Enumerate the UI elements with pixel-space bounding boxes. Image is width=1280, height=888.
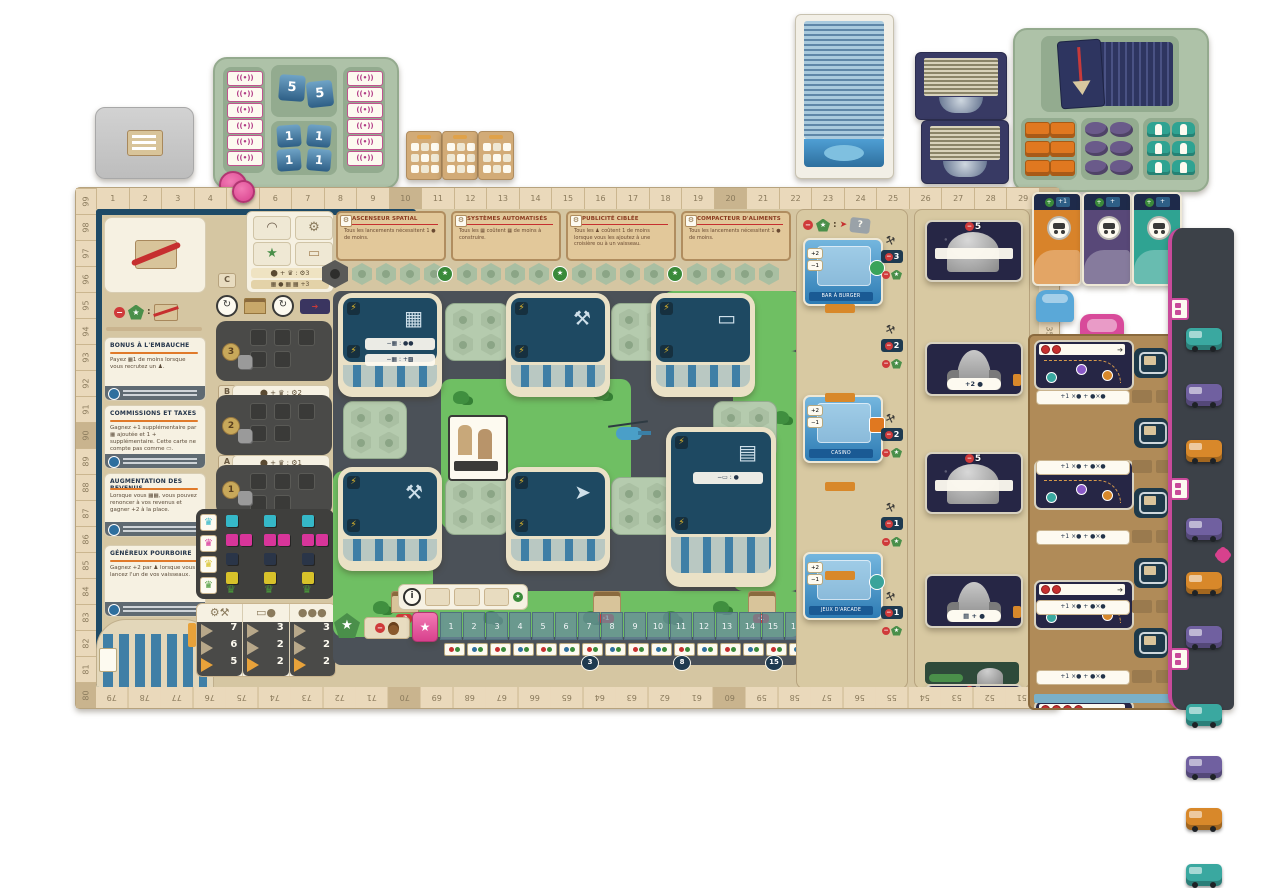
astronaut-token[interactable]	[1147, 141, 1170, 156]
gray-cube[interactable]	[238, 491, 252, 505]
refresh-icon: ↻	[272, 295, 294, 317]
connector-tab	[825, 393, 855, 402]
ore-crate-token[interactable]	[1050, 160, 1075, 176]
rocket-card[interactable]: ▦ + ●	[925, 574, 1023, 628]
flight-arrow-tile: ➔	[300, 299, 330, 314]
building-action-icon: ▭	[717, 306, 736, 330]
project-text: Tous les lancements nécessitent 1 ● de m…	[344, 228, 438, 241]
tile-slot[interactable]	[454, 588, 479, 606]
building[interactable]: ⚡⚡▤−▭ : ●	[666, 427, 776, 587]
cruise-cell[interactable]: 5	[532, 612, 554, 640]
antenna-tile[interactable]: ((•))	[347, 103, 383, 118]
cruise-reward-chip	[697, 643, 718, 656]
gear-socket[interactable]	[749, 407, 769, 429]
cruise-cell[interactable]: 15	[762, 612, 784, 640]
score-track-cell: 8	[324, 188, 357, 209]
dome-card[interactable]: −5	[925, 684, 1023, 687]
cruise-cell[interactable]: 10	[647, 612, 669, 640]
energy-bolt-icon: ⚡	[515, 302, 528, 315]
cruise-cell[interactable]: 4	[509, 612, 531, 640]
gear-socket[interactable]	[619, 483, 639, 505]
gear-socket[interactable]	[481, 334, 501, 356]
score-track-cell: 20	[714, 188, 747, 209]
antenna-tile[interactable]: ((•))	[347, 119, 383, 134]
rover-wheels	[1104, 230, 1108, 234]
antenna-tile[interactable]: ((•))	[227, 71, 263, 86]
comet-bonus-card[interactable]: ++1	[1032, 192, 1082, 286]
helmet-cost-icon	[1052, 345, 1061, 354]
cruise-cell[interactable]: 14	[739, 612, 761, 640]
wrench-icon: ⚒	[883, 233, 897, 249]
asteroid-token[interactable]	[1085, 141, 1108, 156]
token-well	[1021, 118, 1077, 180]
reference-card-cell	[431, 154, 439, 162]
cargo-truck-token[interactable]	[1186, 328, 1222, 350]
gear-socket[interactable]	[647, 483, 667, 505]
formula-tag[interactable]	[1132, 390, 1152, 403]
tile-slot[interactable]	[425, 588, 450, 606]
gear-socket[interactable]	[620, 263, 640, 285]
asteroid-token[interactable]	[1110, 141, 1133, 156]
gear-socket[interactable]	[352, 263, 372, 285]
room-cost-value: 3	[894, 252, 900, 261]
cruise-reward-chip	[582, 643, 603, 656]
trajectory-stop-icon	[1046, 372, 1057, 383]
gear-socket[interactable]	[647, 508, 667, 530]
building-action-icon: ▦	[404, 306, 423, 330]
cruise-lead-tile: −	[364, 617, 410, 639]
gear-socket[interactable]	[379, 432, 399, 454]
forbidden-card-icon	[154, 304, 178, 321]
room-minus-star: −★	[881, 446, 903, 459]
crown-tile: ♛	[200, 556, 217, 573]
project-tile[interactable]: SYSTÈMES AUTOMATISÉS⚙Tous les ▦ coûtent …	[451, 211, 561, 261]
gear-slot[interactable]	[274, 425, 291, 442]
ore-crate-token[interactable]	[1050, 141, 1075, 157]
cruise-cell[interactable]: 3	[486, 612, 508, 640]
tan-card-stack[interactable]	[930, 126, 1000, 160]
rocket-card[interactable]: +2 ●	[925, 342, 1023, 396]
crown-cube-grid: ♛♛♛♛♛♛♛	[196, 509, 334, 599]
asteroid-token[interactable]	[1110, 122, 1133, 137]
gear-socket[interactable]	[619, 508, 639, 530]
antenna-tile[interactable]: ((•))	[227, 151, 263, 166]
score-track-cell: 24	[844, 188, 877, 209]
gear-socket[interactable]	[687, 263, 707, 285]
gear-socket[interactable]	[351, 432, 371, 454]
gear-socket[interactable]	[481, 483, 501, 505]
footnote-icon	[108, 524, 120, 536]
blue-card-stack[interactable]	[804, 21, 884, 139]
gear-socket[interactable]	[735, 263, 755, 285]
gear-socket[interactable]	[453, 309, 473, 331]
building[interactable]: ⚡⚡⚒	[506, 293, 610, 397]
antenna-tile[interactable]: ((•))	[347, 87, 383, 102]
gear-socket[interactable]	[619, 309, 639, 331]
gear-socket[interactable]	[721, 407, 741, 429]
resource-cube[interactable]	[264, 515, 276, 527]
building-formula: −▦ : +▩	[365, 354, 435, 366]
reference-card-header	[417, 135, 431, 139]
value-1-tile[interactable]: 1	[306, 148, 332, 172]
gear-slot[interactable]	[250, 403, 267, 420]
crown-tile: ♛	[200, 535, 217, 552]
resource-cube[interactable]	[264, 553, 276, 565]
room-minus-star: −★	[881, 535, 903, 548]
cargo-truck-token[interactable]	[1186, 864, 1222, 886]
resource-cube[interactable]	[226, 534, 238, 546]
value-1-tile[interactable]: 1	[306, 124, 332, 148]
flight-card-front[interactable]	[1057, 39, 1106, 110]
cruise-cell[interactable]: 6	[555, 612, 577, 640]
gear-socket[interactable]	[481, 263, 501, 285]
comet-card-bonus: +1	[1056, 197, 1070, 207]
gray-cube[interactable]	[238, 429, 252, 443]
astronaut-token[interactable]	[1147, 122, 1170, 137]
reference-card[interactable]	[442, 131, 478, 180]
antenna-tile[interactable]: ((•))	[347, 135, 383, 150]
holder-card-front[interactable]	[939, 97, 983, 113]
reference-card[interactable]	[406, 131, 442, 180]
cruise-cell[interactable]: 12	[693, 612, 715, 640]
comet-card-art	[1034, 250, 1080, 284]
dome-card[interactable]: −5	[925, 220, 1023, 282]
bonus-card[interactable]: GÉNÉREUX POURBOIREGagnez +2 par ♟ lorsqu…	[104, 545, 206, 617]
helipad-slot[interactable]	[1134, 348, 1168, 378]
card-stack-icon	[127, 130, 163, 156]
score-value: 2	[323, 656, 330, 667]
reference-card-cell	[493, 143, 501, 151]
cargo-truck-token[interactable]	[1186, 518, 1222, 540]
room-cost-value: 2	[894, 341, 900, 350]
asteroid-token[interactable]	[1085, 160, 1108, 175]
row-formula-strip: +1 ×● + ●×●	[1036, 670, 1130, 685]
score-track-cell: 66	[519, 687, 552, 708]
gear-slot[interactable]	[274, 329, 291, 346]
tile-slot[interactable]	[484, 588, 509, 606]
gear-socket[interactable]	[453, 334, 473, 356]
cruise-cell[interactable]: 1	[440, 612, 462, 640]
gear-socket[interactable]	[529, 263, 549, 285]
building[interactable]: ⚡⚡➤	[506, 467, 610, 571]
dark-gear-token[interactable]	[322, 260, 348, 288]
project-text: Tous les ♟ coûtent 1 de moins lorsque vo…	[574, 228, 668, 248]
score-value: 6	[230, 639, 237, 650]
room-card[interactable]: +2−1BAR À BURGER	[803, 238, 883, 306]
resource-cube[interactable]	[264, 534, 276, 546]
info-icon: i	[403, 588, 421, 606]
helipad-slot[interactable]	[1134, 488, 1168, 518]
cruise-pink-marker[interactable]: ★	[412, 612, 438, 642]
antenna-tile[interactable]: ((•))	[347, 151, 383, 166]
gear-socket[interactable]	[376, 263, 396, 285]
bonus-card[interactable]: COMMISSIONS ET TAXESGagnez +1 supplément…	[104, 405, 206, 469]
building-action-icon: ⚒	[573, 306, 591, 330]
gray-card-deck[interactable]	[95, 107, 194, 179]
trajectory-cost-band: ➔	[1039, 704, 1125, 710]
ore-crate-token[interactable]	[1050, 122, 1075, 138]
resource-cube[interactable]	[316, 534, 328, 546]
comet-bonus-card[interactable]: ++	[1082, 192, 1132, 286]
astronaut-token[interactable]	[1172, 122, 1195, 137]
trajectory-stop-icon	[1076, 484, 1087, 495]
formula-tag[interactable]	[1132, 530, 1152, 543]
holder-card-front[interactable]	[943, 161, 987, 177]
truck-wheel-front	[1192, 882, 1198, 888]
value-1-tile[interactable]: 1	[276, 148, 301, 172]
dome-cost-value: 5	[975, 454, 981, 464]
gear-pad	[445, 303, 509, 361]
trajectory-card[interactable]: ➔	[1034, 340, 1134, 390]
score-track-cell: 81	[76, 656, 96, 682]
reference-card-cell	[493, 165, 501, 173]
gear-socket[interactable]	[457, 263, 477, 285]
hangar-reward-strip: ⬤ + ♛ : ⚙3	[251, 268, 329, 278]
score-column: ⚙⚒765	[197, 604, 242, 676]
resource-cube[interactable]	[240, 534, 252, 546]
gear-socket[interactable]	[596, 263, 616, 285]
resource-cube[interactable]	[302, 515, 314, 527]
gear-slot[interactable]	[250, 473, 267, 490]
energy-bolt-icon: ⚡	[347, 345, 360, 358]
cargo-truck-token[interactable]	[1186, 572, 1222, 594]
reference-card-cell	[411, 154, 419, 162]
antenna-tile[interactable]: ((•))	[227, 103, 263, 118]
project-tile[interactable]: ASCENSEUR SPATIAL⚙Tous les lancements né…	[336, 211, 446, 261]
gear-socket[interactable]	[379, 407, 399, 429]
value-5-tile[interactable]: 5	[306, 80, 335, 109]
cruise-cell[interactable]: 9	[624, 612, 646, 640]
room-card[interactable]: +2−1JEUX D'ARCADE	[803, 552, 883, 620]
rocket-side-tab	[1013, 374, 1021, 386]
rover-wheels	[1054, 230, 1058, 234]
score-track-cell: 11	[421, 188, 454, 209]
score-track-cell: 22	[779, 188, 812, 209]
rover-icon	[1147, 216, 1171, 240]
gear-socket[interactable]	[351, 407, 371, 429]
gray-cube[interactable]	[238, 355, 252, 369]
bonus-card-text: Gagnez +1 supplémentaire par ▦ ajoutée e…	[110, 425, 198, 453]
tan-card-stack[interactable]	[924, 58, 998, 96]
score-column: ●●●322	[289, 604, 335, 676]
score-track-cell: 93	[76, 344, 96, 370]
cargo-truck-token[interactable]	[1186, 440, 1222, 462]
score-track-cell: 68	[454, 687, 487, 708]
gear-slot[interactable]	[274, 351, 291, 368]
launchpad-grass	[929, 674, 963, 682]
comet-card-banner: ++1	[1034, 194, 1080, 210]
cruise-milestone: 15	[765, 655, 783, 671]
score-track-cell: 85	[76, 552, 96, 578]
rocket-reward-pill: ▦ + ●	[947, 610, 1001, 622]
score-arrow	[201, 641, 213, 655]
formula-tag[interactable]	[1132, 600, 1152, 613]
resource-cube[interactable]	[302, 534, 314, 546]
reference-card[interactable]	[478, 131, 514, 180]
room-minus-star: −★	[881, 357, 903, 370]
resource-cube[interactable]	[226, 553, 238, 565]
resource-cube[interactable]	[226, 515, 238, 527]
green-crown-icon: ♛	[302, 583, 312, 596]
value-5-tile[interactable]: 5	[278, 74, 306, 102]
mystery-tile[interactable]: ?	[849, 216, 870, 233]
value-1-tile[interactable]: 1	[276, 124, 301, 148]
rover-icon	[1097, 216, 1121, 240]
dome-cost-value: 5	[975, 222, 981, 232]
minus-badge: −	[803, 220, 813, 230]
gear-socket[interactable]	[505, 263, 525, 285]
reference-card-cell	[503, 165, 511, 173]
ore-crate-token[interactable]	[1025, 141, 1050, 157]
endgame-score-table: ⚙⚒765▭●322●●●322	[196, 603, 336, 677]
footnote-line	[123, 526, 197, 528]
asteroid-token[interactable]	[1085, 122, 1108, 137]
bonus-card-footnote	[105, 386, 205, 400]
helipad-slot[interactable]	[1134, 558, 1168, 588]
heli-tail	[638, 431, 651, 435]
score-track-cell: 78	[129, 687, 162, 708]
project-title: SYSTÈMES AUTOMATISÉS	[467, 216, 555, 222]
gear-slot[interactable]	[274, 403, 291, 420]
score-arrow	[201, 658, 213, 672]
bonus-card[interactable]: AUGMENTATION DES REVENUSLorsque vous ▦▦,…	[104, 473, 206, 537]
score-track-cell: 25	[876, 188, 909, 209]
building[interactable]: ⚡⚡▦−▦ : ●●−▦ : +▩	[338, 293, 442, 397]
score-arrow	[294, 641, 306, 655]
forbidden-card-icon	[135, 240, 177, 269]
astronaut-token[interactable]	[1172, 160, 1195, 175]
score-track-cell: 76	[194, 687, 227, 708]
antenna-tile[interactable]: ((•))	[227, 135, 263, 150]
building[interactable]: ⚡⚡⚒	[338, 467, 442, 571]
bonus-card[interactable]: BONUS À L'EMBAUCHEPayez ▦1 de moins lors…	[104, 337, 206, 401]
room-cost-badge: −1	[881, 606, 903, 619]
dome-cost-badge: −5	[959, 452, 987, 465]
project-title-rule	[697, 224, 783, 225]
gear-slot[interactable]	[274, 473, 291, 490]
row-formula-strip: +1 ×● + ●×●	[1036, 530, 1130, 545]
score-track-cell: 99	[76, 188, 96, 214]
cargo-truck-token[interactable]	[1186, 384, 1222, 406]
gear-socket[interactable]	[572, 263, 592, 285]
gear-socket[interactable]	[711, 263, 731, 285]
dome-card[interactable]: −5	[925, 452, 1023, 514]
resource-cube[interactable]	[302, 553, 314, 565]
reference-card-cell	[421, 165, 429, 173]
score-track-left: 9998979695949392919089888786858483828180	[76, 188, 96, 708]
cargo-truck-token[interactable]	[1186, 704, 1222, 726]
asteroid-token[interactable]	[1110, 160, 1133, 175]
dome-reward-strip	[935, 248, 1013, 259]
cruise-cell[interactable]: 8	[601, 612, 623, 640]
cruise-cell[interactable]: 2	[463, 612, 485, 640]
flower-marker[interactable]	[1216, 548, 1230, 562]
gear-slot[interactable]	[298, 403, 315, 420]
astronaut-token[interactable]	[1147, 160, 1170, 175]
reference-card-cell	[467, 154, 475, 162]
helmet-cost-icon	[1052, 705, 1061, 710]
truck-wheel-front	[1192, 402, 1198, 408]
antenna-tile[interactable]: ((•))	[227, 119, 263, 134]
score-track-cell: 96	[76, 266, 96, 292]
truck-wheel-front	[1192, 458, 1198, 464]
cruise-reward-chip	[674, 643, 695, 656]
cargo-truck-token[interactable]	[1186, 626, 1222, 648]
comet-card-banner: ++	[1084, 194, 1130, 210]
gear-slot[interactable]	[298, 329, 315, 346]
astronaut-token[interactable]	[1172, 141, 1195, 156]
project-hex-row: ★	[437, 259, 565, 289]
astronaut-figure	[1180, 143, 1187, 154]
score-track-cell: 95	[76, 292, 96, 318]
gear-socket[interactable]	[619, 334, 639, 356]
gear-slot[interactable]	[250, 329, 267, 346]
gear-socket[interactable]	[400, 263, 420, 285]
room-minus-star: −★	[881, 268, 903, 281]
resource-cube[interactable]	[278, 534, 290, 546]
formula-tag[interactable]	[1132, 670, 1152, 683]
plus-star-badge: ★	[552, 266, 568, 282]
gear-socket[interactable]	[481, 508, 501, 530]
gear-socket[interactable]	[644, 263, 664, 285]
room-cost-value: 1	[894, 608, 900, 617]
gear-slot[interactable]	[250, 351, 267, 368]
score-track-cell: 87	[76, 500, 96, 526]
gear-socket[interactable]	[453, 483, 473, 505]
score-track-cell: 19	[681, 188, 714, 209]
room-income-chip: −1	[807, 574, 823, 585]
cruise-reward-chip	[559, 643, 580, 656]
central-solar-card[interactable]	[448, 415, 508, 481]
bonus-card-text: Gagnez +2 par ♟ lorsque vous lancez l'un…	[110, 565, 198, 579]
helipad-slot[interactable]	[1134, 628, 1168, 658]
project-tile[interactable]: COMPACTEUR D'ALIMENTS⚙Tous les lancement…	[681, 211, 791, 261]
dome-cost-badge: −5	[959, 220, 987, 233]
cruise-cell[interactable]: 11	[670, 612, 692, 640]
ore-crate-token[interactable]	[1025, 122, 1050, 138]
gear-slot[interactable]	[298, 473, 315, 490]
cargo-truck-token[interactable]	[1186, 756, 1222, 778]
cargo-truck-token[interactable]	[1186, 808, 1222, 830]
bonus-card-footnote	[105, 454, 205, 468]
gear-slot[interactable]	[250, 425, 267, 442]
worker-slot-block: 2	[216, 395, 332, 455]
score-track-cell: 71	[356, 687, 389, 708]
reference-card-cell	[467, 165, 475, 173]
formula-tag[interactable]	[1132, 460, 1152, 473]
truck-wheel-rear	[1210, 722, 1216, 728]
title-underline	[110, 420, 198, 422]
building[interactable]: ⚡⚡▭	[651, 293, 755, 397]
antenna-tile[interactable]: ((•))	[227, 87, 263, 102]
room-card[interactable]: +2−1CASINO	[803, 395, 883, 463]
helipad-slot[interactable]	[1134, 418, 1168, 448]
kiosk-icon	[244, 298, 266, 314]
gear-socket[interactable]	[759, 263, 779, 285]
small-card-holder	[915, 52, 1007, 120]
ore-crate-token[interactable]	[1025, 160, 1050, 176]
cruise-cell[interactable]: 13	[716, 612, 738, 640]
antenna-tile[interactable]: ((•))	[347, 71, 383, 86]
room-card-column: −★:➤?+2−1BAR À BURGER⚒−3−★+2−1CASINO⚒−2−…	[796, 209, 908, 687]
score-track-cell: 53	[941, 687, 974, 708]
project-tile[interactable]: PUBLICITÉ CIBLÉE⚙Tous les ♟ coûtent 1 de…	[566, 211, 676, 261]
player-pod[interactable]	[1036, 290, 1074, 322]
gear-socket[interactable]	[453, 508, 473, 530]
score-track-cell: 3	[161, 188, 194, 209]
gear-socket[interactable]	[481, 309, 501, 331]
cruise-cell[interactable]: 7	[578, 612, 600, 640]
